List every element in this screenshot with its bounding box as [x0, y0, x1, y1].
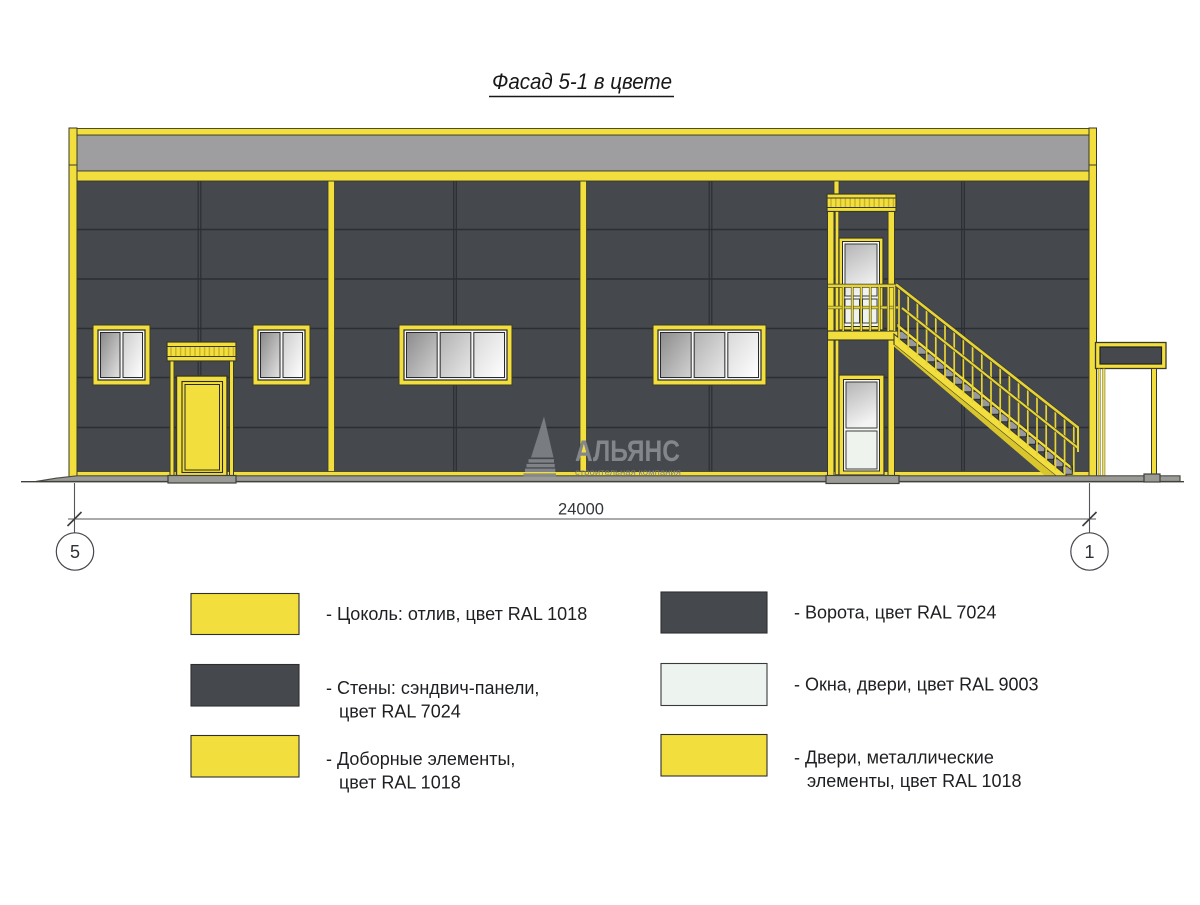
svg-text:цвет RAL 7024: цвет RAL 7024	[339, 702, 461, 722]
svg-text:- Доборные элементы,: - Доборные элементы,	[326, 749, 515, 769]
svg-text:строительная компания: строительная компания	[575, 467, 681, 477]
svg-text:24000: 24000	[558, 501, 604, 519]
svg-text:- Стены: сэндвич-панели,: - Стены: сэндвич-панели,	[326, 678, 539, 698]
svg-text:Фасад 5-1 в цвете: Фасад 5-1 в цвете	[492, 69, 672, 94]
svg-text:АЛЬЯНС: АЛЬЯНС	[575, 435, 680, 468]
svg-text:1: 1	[1084, 542, 1094, 562]
svg-text:- Цоколь: отлив, цвет RAL 1018: - Цоколь: отлив, цвет RAL 1018	[326, 604, 587, 624]
svg-text:- Ворота, цвет RAL 7024: - Ворота, цвет RAL 7024	[794, 603, 996, 623]
svg-text:- Окна, двери, цвет RAL 9003: - Окна, двери, цвет RAL 9003	[794, 675, 1039, 695]
svg-text:цвет RAL 1018: цвет RAL 1018	[339, 773, 461, 793]
svg-text:- Двери, металлические: - Двери, металлические	[794, 748, 994, 768]
svg-text:5: 5	[70, 542, 80, 562]
svg-text:элементы, цвет RAL 1018: элементы, цвет RAL 1018	[807, 771, 1022, 791]
